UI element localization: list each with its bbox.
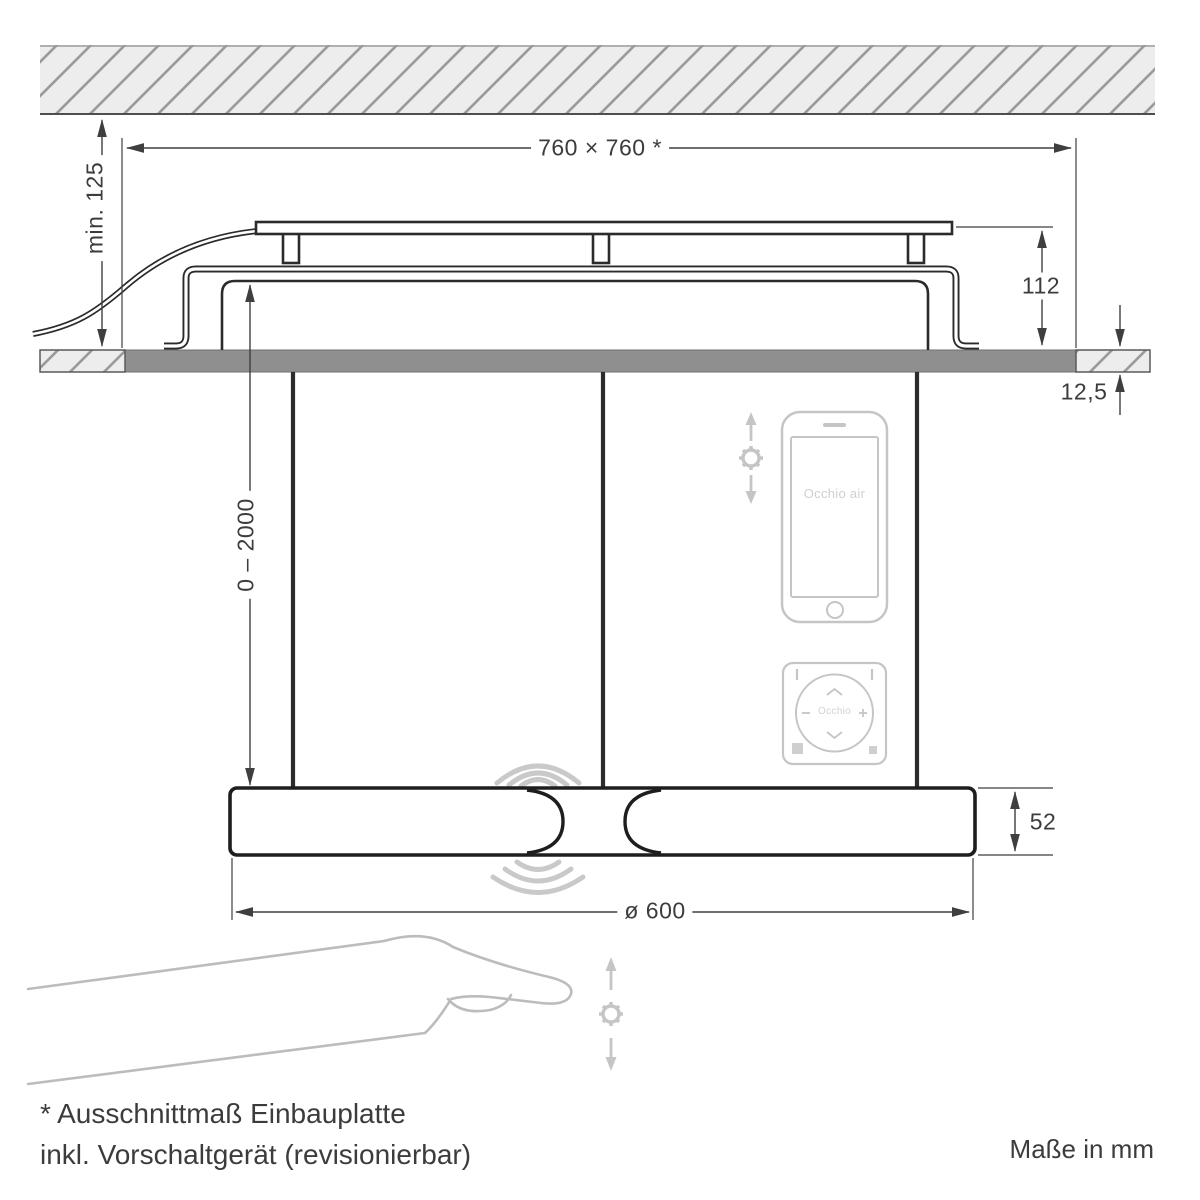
remote-brand-label: Occhio	[795, 706, 874, 717]
plate-foot	[283, 233, 299, 263]
drawing-geometry	[0, 0, 1200, 1200]
ceiling-panel	[40, 350, 1150, 372]
dim-label-52: 52	[1030, 809, 1057, 836]
dim-label-suspension-range: 0 – 2000	[233, 491, 260, 599]
dim-label-panel-thickness: 12,5	[1061, 379, 1108, 406]
remote-menu-button	[792, 743, 803, 754]
panel-hatch-right	[1076, 350, 1150, 372]
dim-label-cutout: 760 × 760 *	[531, 135, 669, 162]
hand-gesture-illustration	[28, 936, 571, 1084]
footnote-line-1: * Ausschnittmaß Einbauplatte	[40, 1093, 471, 1134]
gesture-waves-bottom	[493, 862, 583, 893]
footnote-line-2: inkl. Vorschaltgerät (revisionierbar)	[40, 1134, 471, 1175]
dim-label-112: 112	[1015, 273, 1067, 300]
panel-hatch-left	[40, 350, 125, 372]
canopy-cover	[222, 281, 928, 350]
footnote: * Ausschnittmaß Einbauplatte inkl. Vorsc…	[40, 1093, 471, 1175]
phone-app-label: Occhio air	[791, 486, 878, 501]
luminaire-body	[230, 788, 975, 855]
ceiling-hatch	[40, 45, 1155, 115]
gesture-waves-top	[497, 766, 579, 786]
gear-icon	[599, 1002, 623, 1026]
dim-label-min-clearance: min. 125	[82, 155, 109, 261]
dim-label-diameter: ø 600	[617, 898, 692, 925]
mounting-plate	[256, 222, 952, 263]
dim-diameter-600	[232, 858, 973, 920]
units-note: Maße in mm	[1010, 1134, 1154, 1165]
gesture-adjust-gear-icon	[599, 957, 623, 1071]
plate-foot	[593, 233, 609, 263]
gear-icon	[739, 446, 763, 470]
app-adjust-gear-icon	[739, 412, 763, 504]
remote-corner-button	[869, 746, 877, 754]
supply-cable	[33, 231, 257, 334]
plate-foot	[908, 233, 924, 263]
luminaire-installation-drawing: 760 × 760 * min. 125 112 12,5 0 – 2000 5…	[0, 0, 1200, 1200]
smartphone-icon	[782, 412, 887, 622]
